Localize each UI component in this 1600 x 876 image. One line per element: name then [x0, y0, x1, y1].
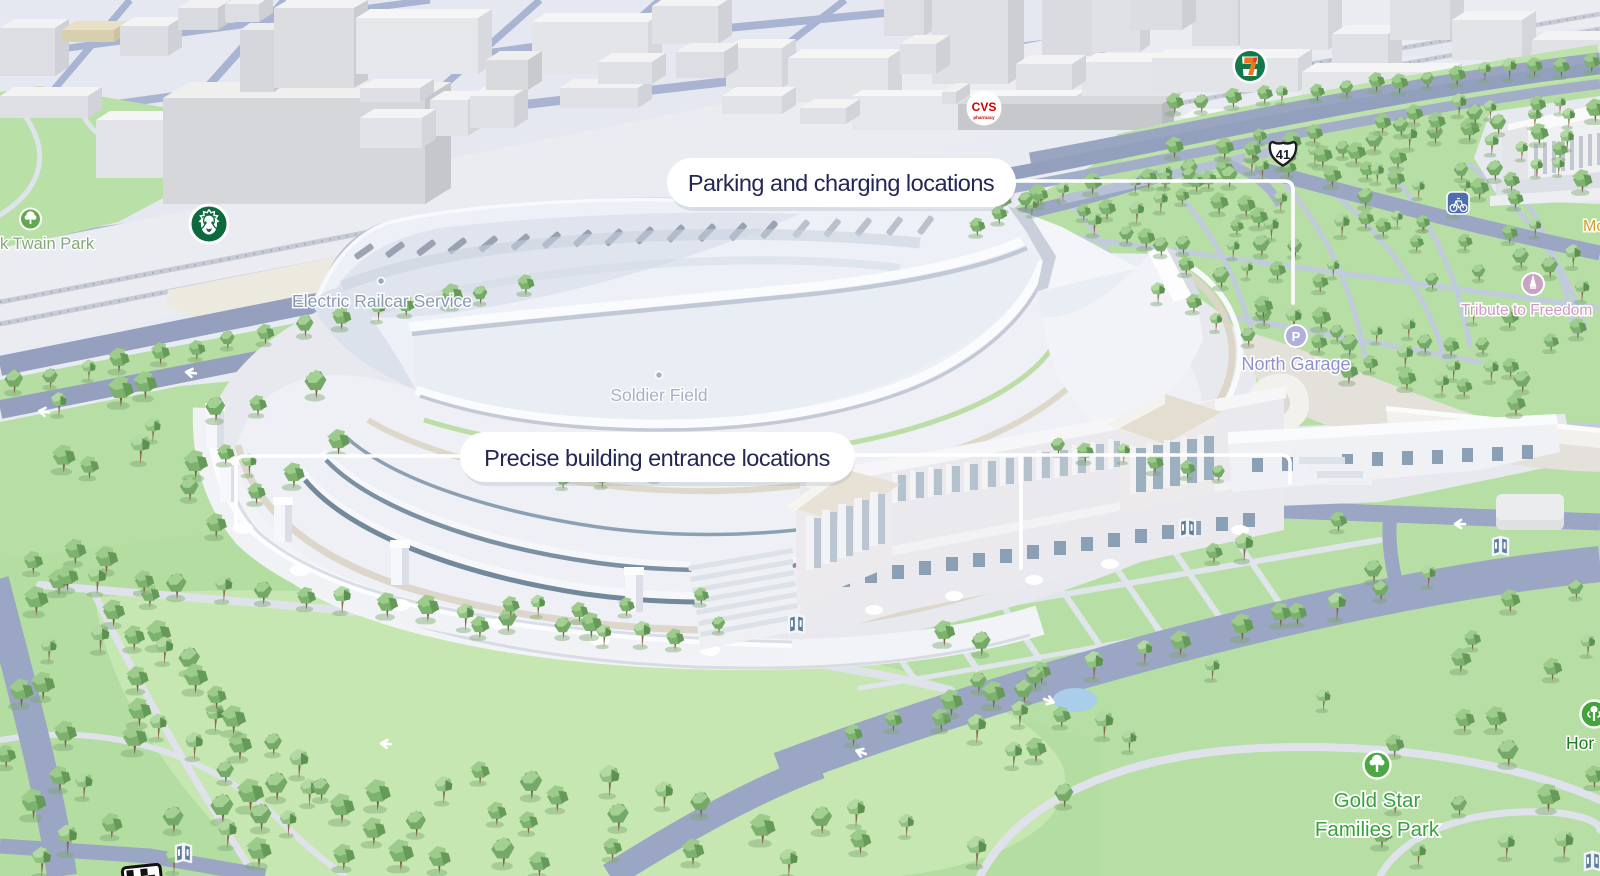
svg-text:Soldier Field: Soldier Field: [610, 385, 707, 405]
svg-text:pharmacy: pharmacy: [973, 115, 995, 120]
svg-text:41: 41: [1276, 147, 1290, 162]
svg-text:Precise building entrance loca: Precise building entrance locations: [484, 445, 830, 471]
svg-text:Gold Star: Gold Star: [1334, 789, 1421, 812]
svg-text:P: P: [1292, 329, 1301, 344]
svg-text:Electric Railcar Service: Electric Railcar Service: [292, 291, 472, 311]
svg-text:North Garage: North Garage: [1241, 354, 1350, 374]
svg-text:Families Park: Families Park: [1315, 818, 1440, 841]
svg-text:CVS: CVS: [972, 100, 997, 114]
svg-text:k Twain Park: k Twain Park: [0, 235, 95, 253]
svg-text:Mo: Mo: [1583, 218, 1600, 235]
svg-text:Tribute to Freedom: Tribute to Freedom: [1461, 302, 1592, 319]
svg-text:Parking and charging locations: Parking and charging locations: [688, 170, 994, 196]
svg-text:Hor: Hor: [1566, 733, 1594, 753]
